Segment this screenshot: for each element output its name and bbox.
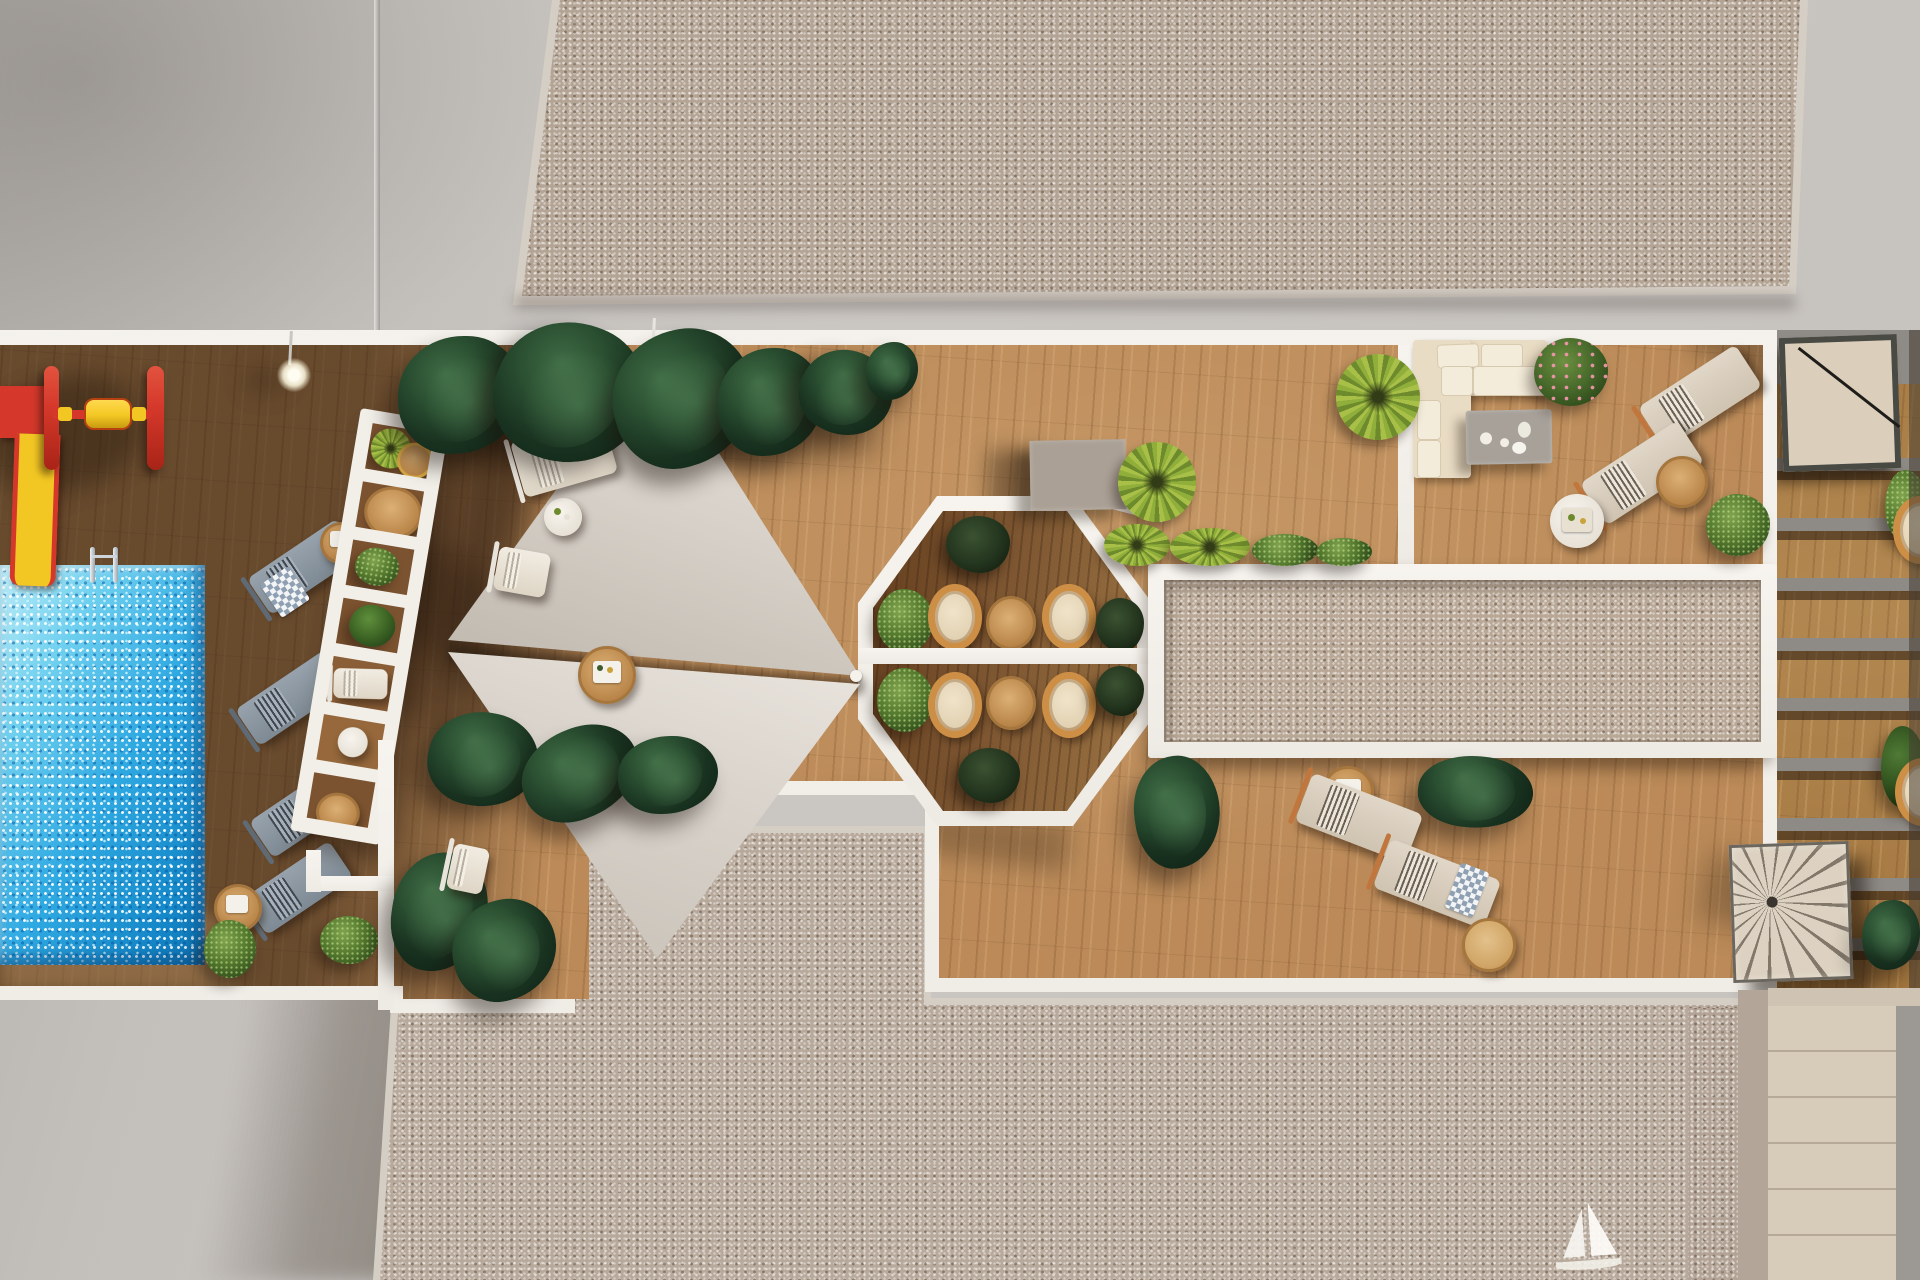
palm-3	[1104, 524, 1170, 566]
pergola-plant-2	[346, 601, 398, 650]
pool-table-tray-2	[226, 895, 248, 913]
tr-tray-table	[1550, 494, 1604, 548]
divider-pool-corner	[378, 740, 394, 1010]
octagon-chair-2	[1042, 584, 1096, 650]
roller-barrel	[84, 398, 132, 430]
tr-tray	[1562, 508, 1592, 532]
octagon-chair-3	[928, 672, 982, 738]
skylight-bush-1	[1252, 534, 1318, 566]
octagon-bushd-1	[1096, 598, 1144, 652]
octagon-chair-1	[928, 584, 982, 650]
pergola-lounger	[333, 668, 388, 699]
sofa-pillow-4	[1417, 440, 1441, 478]
pergola-window-7	[307, 772, 376, 828]
sail-left-shape	[1560, 1209, 1585, 1258]
pool-bush-2	[320, 916, 378, 964]
octagon-bushd-2	[1096, 666, 1144, 716]
sail-area-table	[578, 646, 636, 704]
table-dish-1	[1480, 432, 1492, 444]
swimming-pool	[0, 565, 205, 965]
sail-drink-table	[544, 498, 582, 536]
skylight-bush-2	[1316, 538, 1372, 566]
octagon-bush-bottom	[958, 748, 1020, 803]
sail-right-shape	[1587, 1200, 1617, 1256]
right-dark-rail	[1909, 330, 1920, 990]
sail-table-item-1	[597, 665, 603, 671]
sofa-seat-corner	[1441, 366, 1473, 396]
rooftop-render	[0, 0, 1920, 1280]
octagon-chair-4	[1042, 672, 1096, 738]
octagon-midline	[858, 648, 1152, 664]
ladder-step	[92, 555, 117, 558]
wall-edge-highlight	[374, 0, 380, 332]
pergola-window-5	[326, 656, 395, 712]
table-dish-3	[1512, 442, 1526, 454]
sail-table-item-2	[607, 667, 613, 673]
palm-2	[1118, 442, 1196, 522]
octagon-bush-top	[946, 516, 1010, 573]
pergola-white-table	[335, 725, 370, 760]
br-gravel-strip	[1688, 1008, 1738, 1280]
ladder-rail-left	[90, 547, 95, 583]
octagon-bushg-1	[877, 589, 933, 653]
sail-right-anchor	[850, 670, 862, 682]
stair-center-pole	[1767, 897, 1778, 908]
tr-wood-table	[1656, 456, 1708, 508]
slide-platform	[0, 386, 50, 438]
br-top-band	[1768, 988, 1920, 1006]
sofa-pillow-3	[1417, 400, 1441, 440]
sofa-pillow-2	[1481, 344, 1523, 368]
pergola-window-6	[316, 714, 385, 770]
flower-bush	[1534, 338, 1608, 406]
pergola-round-table	[360, 482, 424, 537]
tr-bush	[1706, 494, 1770, 556]
br-table-2	[1462, 918, 1516, 972]
table-dish-4	[1518, 422, 1531, 438]
utility-block	[1029, 439, 1126, 511]
coffee-table	[1466, 409, 1553, 464]
boat-hull	[1556, 1258, 1622, 1272]
table-dish-2	[1500, 438, 1509, 447]
skylight-gravel	[1164, 580, 1761, 742]
sail-lounger-2	[493, 546, 552, 598]
pergola-plant-1	[352, 544, 402, 589]
octagon-table-1	[986, 596, 1036, 650]
br-edge-strip	[1896, 1004, 1920, 1280]
roller-axle-cap-right	[132, 407, 146, 421]
roller-axle-cap-left	[58, 407, 72, 421]
drink-item-2	[564, 514, 570, 520]
lamp-glow	[277, 358, 311, 392]
palm-4	[1170, 528, 1250, 566]
spiral-stair	[1729, 841, 1854, 983]
tr-tray-item-1	[1568, 514, 1575, 521]
drink-item-1	[554, 508, 561, 515]
br-walkway	[1768, 1004, 1896, 1280]
pool-bush-1	[204, 920, 256, 978]
sailboat-mark	[1549, 1197, 1634, 1280]
pergola-window-3	[346, 540, 415, 596]
tr-tray-item-2	[1580, 518, 1586, 524]
br-wall-band	[1738, 990, 1768, 1280]
palm-1	[1336, 354, 1420, 440]
ladder-rail-right	[113, 547, 118, 583]
octagon-table-2	[986, 676, 1036, 730]
right-canopy	[1779, 334, 1902, 472]
pool-ladder	[88, 547, 122, 585]
octagon-bushg-2	[877, 668, 933, 732]
sofa-pillow-1	[1437, 343, 1480, 368]
upper-roof-shadow	[515, 296, 1795, 309]
divider-corner-stub-v	[306, 850, 321, 892]
pergola-window-4	[336, 598, 405, 654]
pergola-window-2	[355, 481, 424, 537]
pergola-table-low	[313, 789, 363, 828]
